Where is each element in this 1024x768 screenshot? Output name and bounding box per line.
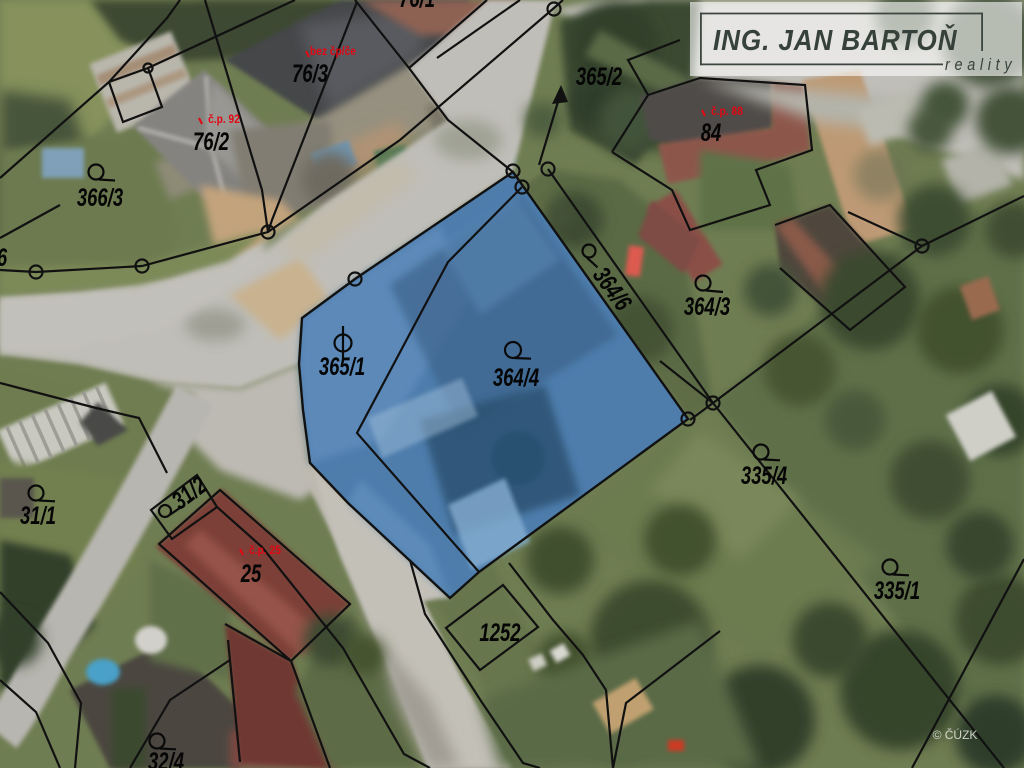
svg-text:© ČÚZK: © ČÚZK	[933, 727, 978, 742]
svg-text:335/1: 335/1	[874, 576, 920, 604]
svg-text:365/2: 365/2	[576, 62, 622, 90]
svg-text:reality: reality	[945, 56, 1016, 74]
svg-text:364/4: 364/4	[493, 363, 539, 391]
svg-text:č.p. 25: č.p. 25	[249, 544, 281, 557]
svg-text:84: 84	[701, 118, 722, 146]
svg-text:31/1: 31/1	[20, 501, 56, 529]
svg-text:76/2: 76/2	[193, 127, 229, 155]
svg-text:č.p. 92: č.p. 92	[208, 113, 240, 126]
svg-text:335/4: 335/4	[741, 461, 787, 489]
svg-text:č.p. 88: č.p. 88	[711, 105, 743, 118]
svg-text:76/3: 76/3	[292, 59, 328, 87]
svg-text:32/4: 32/4	[148, 747, 184, 768]
svg-text:366/3: 366/3	[77, 183, 123, 211]
svg-text:bez čp/če: bez čp/če	[310, 45, 356, 58]
svg-text:6: 6	[0, 243, 8, 271]
svg-text:ING. JAN BARTOŇ: ING. JAN BARTOŇ	[713, 24, 958, 57]
svg-text:364/3: 364/3	[684, 292, 730, 320]
svg-text:25: 25	[240, 559, 262, 587]
svg-text:365/1: 365/1	[319, 352, 365, 380]
svg-text:1252: 1252	[479, 618, 520, 646]
svg-text:76/1: 76/1	[399, 0, 435, 13]
